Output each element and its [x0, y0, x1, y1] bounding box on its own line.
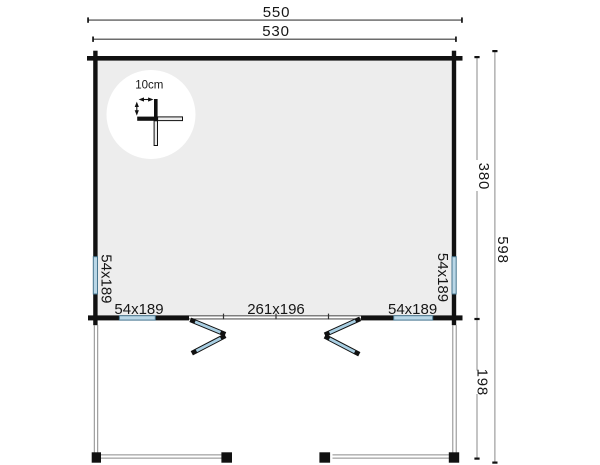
svg-text:261x196: 261x196: [247, 301, 305, 318]
svg-text:54x189: 54x189: [97, 254, 114, 303]
svg-text:54x189: 54x189: [434, 253, 451, 302]
svg-text:10cm: 10cm: [135, 80, 163, 92]
svg-text:550: 550: [263, 4, 290, 21]
svg-text:530: 530: [262, 23, 289, 40]
svg-text:598: 598: [494, 236, 511, 263]
svg-text:54x189: 54x189: [388, 301, 437, 318]
svg-text:54x189: 54x189: [114, 301, 163, 318]
svg-text:380: 380: [475, 163, 492, 190]
svg-text:198: 198: [473, 369, 490, 396]
